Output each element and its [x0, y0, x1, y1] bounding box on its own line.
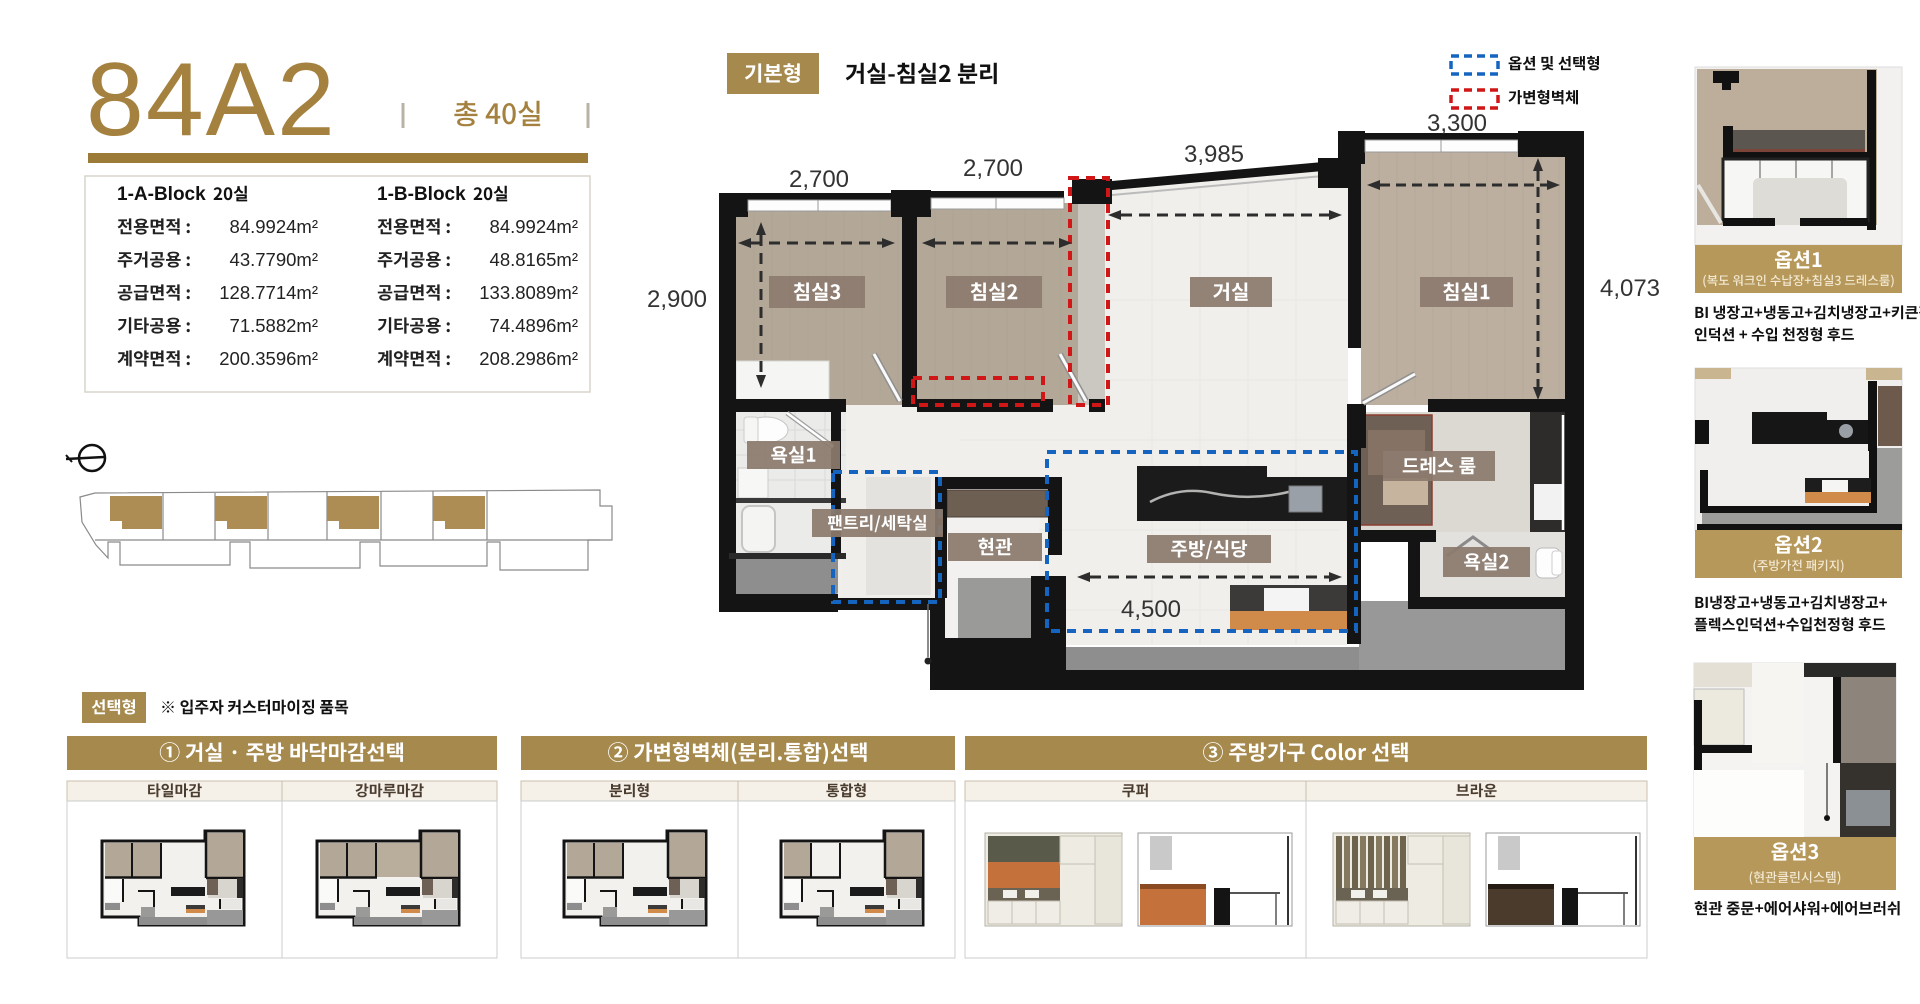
svg-text:4,500: 4,500 [1121, 596, 1181, 623]
svg-text:3,985: 3,985 [1184, 141, 1244, 168]
svg-text:2,700: 2,700 [963, 155, 1023, 182]
svg-text:1-A-Block: 1-A-Block [117, 184, 206, 205]
svg-text:1-B-Block: 1-B-Block [377, 184, 466, 205]
svg-text:2,700: 2,700 [789, 166, 849, 193]
svg-text:84.9924m²: 84.9924m² [490, 216, 578, 237]
svg-text:2,900: 2,900 [647, 286, 707, 313]
svg-text:43.7790m²: 43.7790m² [230, 249, 318, 270]
svg-text:71.5882m²: 71.5882m² [230, 315, 318, 336]
svg-text:74.4896m²: 74.4896m² [490, 315, 578, 336]
svg-text:4,073: 4,073 [1600, 275, 1660, 302]
svg-text:3,300: 3,300 [1427, 110, 1487, 137]
svg-text:48.8165m²: 48.8165m² [490, 249, 578, 270]
svg-text:84A2: 84A2 [86, 42, 337, 158]
svg-text:208.2986m²: 208.2986m² [479, 348, 578, 369]
svg-text:84.9924m²: 84.9924m² [230, 216, 318, 237]
svg-text:128.7714m²: 128.7714m² [219, 282, 318, 303]
svg-text:200.3596m²: 200.3596m² [219, 348, 318, 369]
svg-text:133.8089m²: 133.8089m² [479, 282, 578, 303]
